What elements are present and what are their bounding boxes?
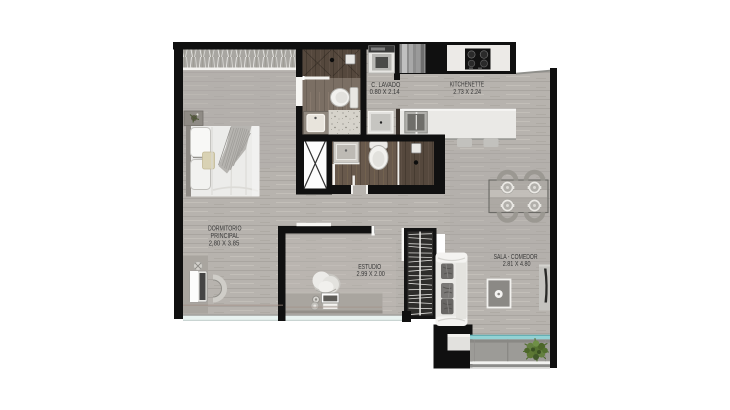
svg-text:2.99 X 2.00: 2.99 X 2.00 bbox=[357, 269, 385, 278]
svg-text:2.81 X 4.80: 2.81 X 4.80 bbox=[503, 259, 531, 268]
svg-text:2,80 X 3.85: 2,80 X 3.85 bbox=[209, 238, 240, 247]
svg-text:0.80 X 2.14: 0.80 X 2.14 bbox=[370, 87, 400, 96]
svg-text:2.73 X 2.24: 2.73 X 2.24 bbox=[453, 87, 481, 96]
